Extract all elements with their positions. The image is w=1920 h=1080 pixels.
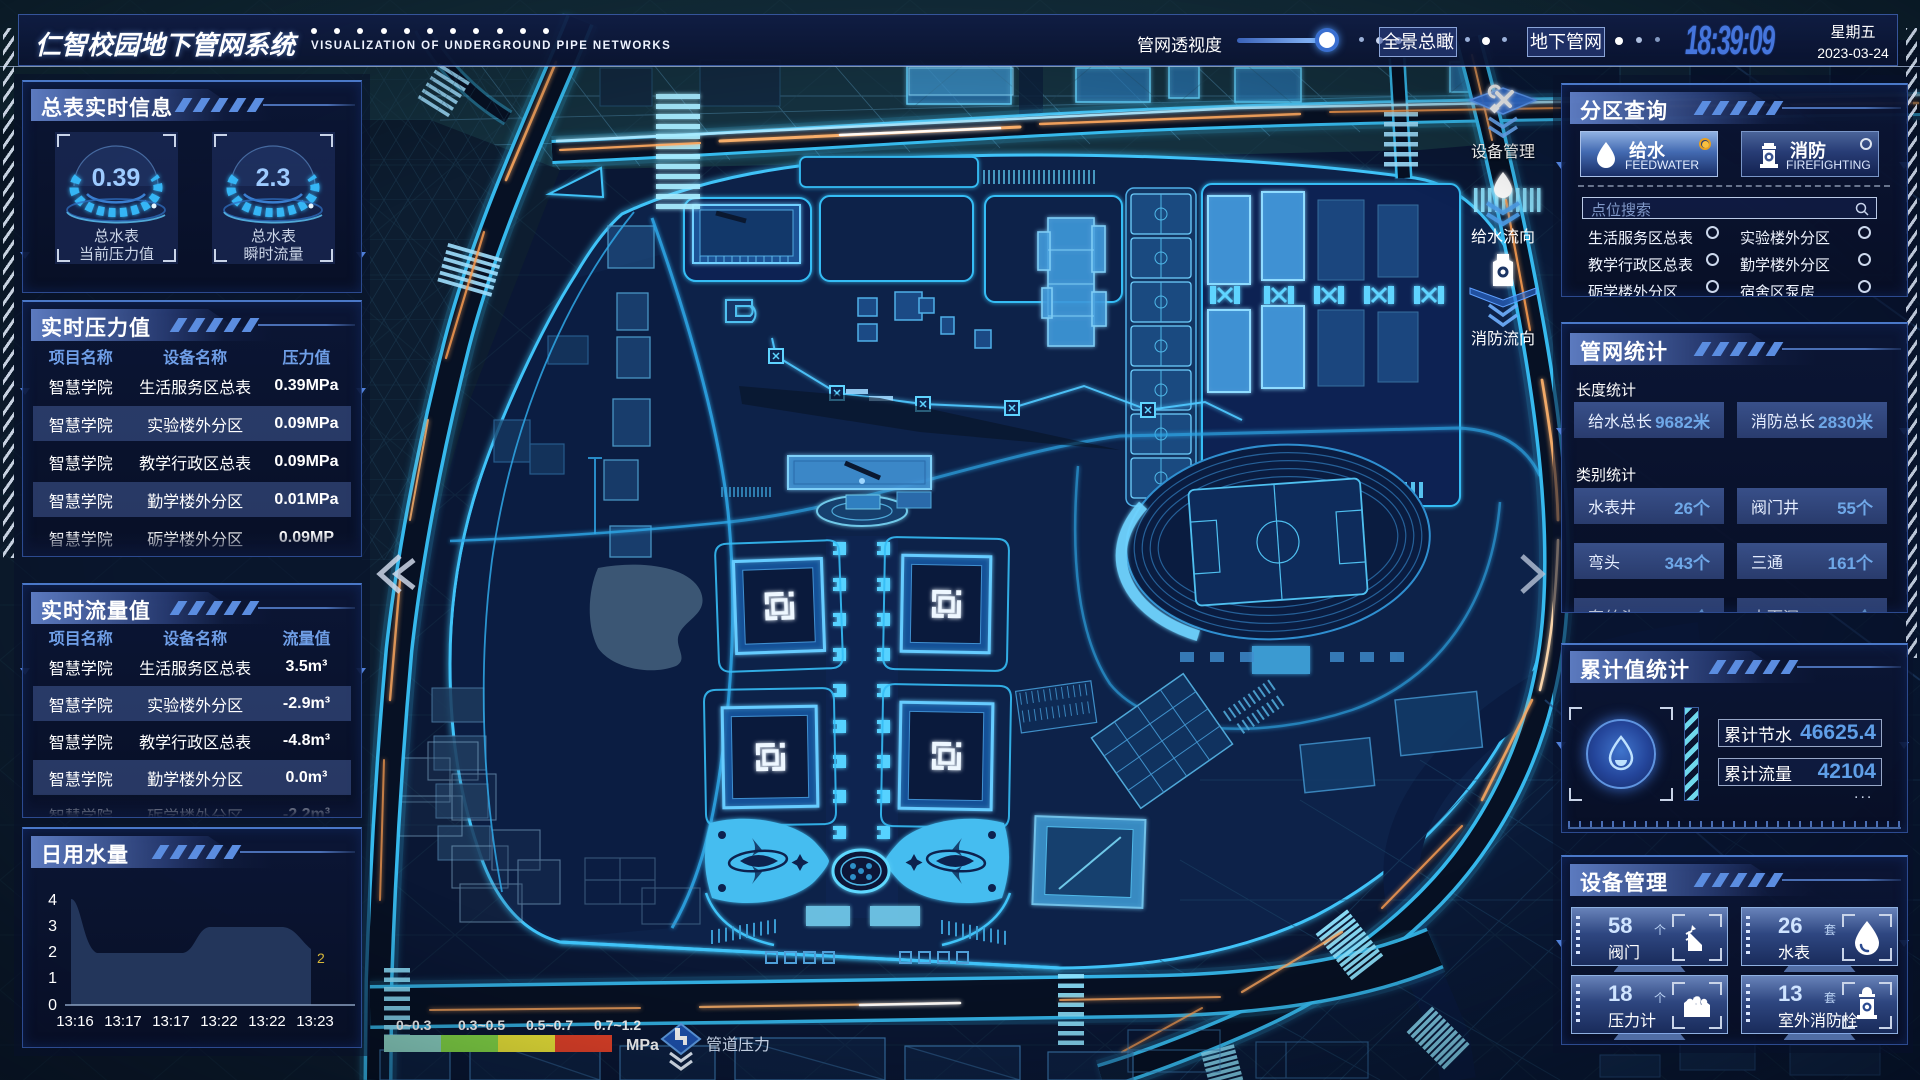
svg-text:13:17: 13:17	[152, 1013, 190, 1030]
svg-text:1: 1	[48, 970, 57, 987]
svg-text:13:22: 13:22	[200, 1013, 238, 1030]
svg-text:2.3: 2.3	[256, 164, 291, 192]
svg-text:3: 3	[48, 918, 57, 935]
svg-text:13:23: 13:23	[296, 1013, 334, 1030]
svg-text:2: 2	[317, 950, 325, 966]
svg-text:0.39: 0.39	[92, 164, 141, 192]
svg-text:13:16: 13:16	[56, 1013, 94, 1030]
svg-text:0: 0	[48, 997, 57, 1014]
svg-text:13:22: 13:22	[248, 1013, 286, 1030]
svg-text:4: 4	[48, 892, 57, 909]
svg-text:13:17: 13:17	[104, 1013, 142, 1030]
svg-text:2: 2	[48, 944, 57, 961]
